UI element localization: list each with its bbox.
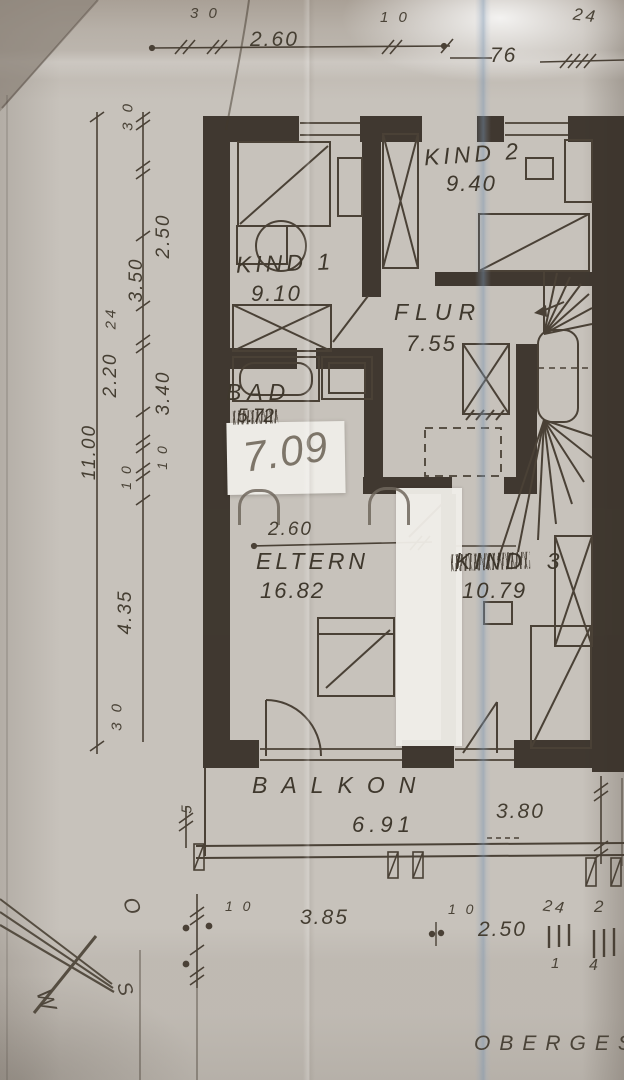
dim-bottom-1: 1	[551, 955, 562, 972]
dim-left-10a: 1 0	[154, 444, 170, 469]
dim-top-76: 76	[490, 44, 517, 68]
dim-left-10b: 1 0	[118, 464, 134, 489]
room-label-eltern: ELTERN	[256, 548, 369, 575]
room-area-balkon: 6.91	[352, 812, 415, 838]
room-label-kind1: KIND 1	[236, 248, 335, 278]
dim-bottom-250: 2.50	[478, 918, 527, 942]
room-area-kind2: 9.40	[446, 171, 497, 197]
dim-left-340: 3.40	[153, 371, 175, 416]
pencil-door-arc	[368, 487, 410, 525]
dim-right-380: 3.80	[496, 800, 545, 824]
kind3-name-scribbled: KIND	[455, 548, 526, 575]
room-label-bad: BAD	[226, 379, 291, 406]
dim-left-350: 3.50	[126, 258, 148, 303]
dim-left-30b: 3 0	[109, 701, 126, 731]
paper-sticker: 7.09	[226, 421, 345, 495]
dim-left-1100: 11.00	[79, 424, 101, 480]
dim-top-260: 2.60	[250, 28, 299, 52]
bad-area-crossed-out: 5.72	[237, 406, 274, 428]
plan-title-partial: OBERGES	[474, 1032, 624, 1056]
dim-left-250: 2.50	[153, 214, 175, 259]
dim-bottom-10a: 1 0	[225, 898, 253, 914]
room-area-eltern: 16.82	[260, 578, 325, 604]
paper-patch-strip	[396, 488, 462, 746]
room-area-flur: 7.55	[406, 331, 457, 357]
room-label-balkon: BALKON	[252, 772, 429, 799]
dim-left-435: 4.35	[115, 590, 137, 635]
dim-top-24: 24	[572, 5, 599, 28]
dim-eltern-door: 2.60	[268, 519, 313, 541]
room-area-kind3: 10.79	[462, 578, 527, 604]
dim-bottom-385: 3.85	[300, 906, 349, 930]
bad-area-handwritten: 7.09	[240, 422, 332, 481]
dim-bottom-10b: 1 0	[448, 901, 476, 917]
dim-bottom-5: 5	[179, 802, 196, 813]
room-area-kind1: 9.10	[251, 281, 302, 307]
floor-plan-photo: 7.09 KIND 2 9.40 KIND 1 9.10 FLUR 7.55 B…	[0, 0, 624, 1080]
dim-left-30: 3 0	[120, 101, 137, 131]
room-label-flur: FLUR	[394, 299, 482, 326]
dim-top-30: 3 0	[190, 5, 220, 22]
dim-top-10: 1 0	[380, 9, 410, 26]
dim-left-24: 24	[103, 307, 120, 330]
balcony-posts	[194, 844, 621, 886]
dim-left-220: 2.20	[100, 353, 122, 398]
dim-bottom-24: 24	[542, 898, 568, 919]
dim-bottom-4: 4	[589, 957, 601, 975]
dim-bottom-2: 2	[594, 897, 606, 917]
kind3-name-number: 3	[547, 548, 564, 574]
room-label-kind3: KIND 3	[455, 548, 564, 575]
